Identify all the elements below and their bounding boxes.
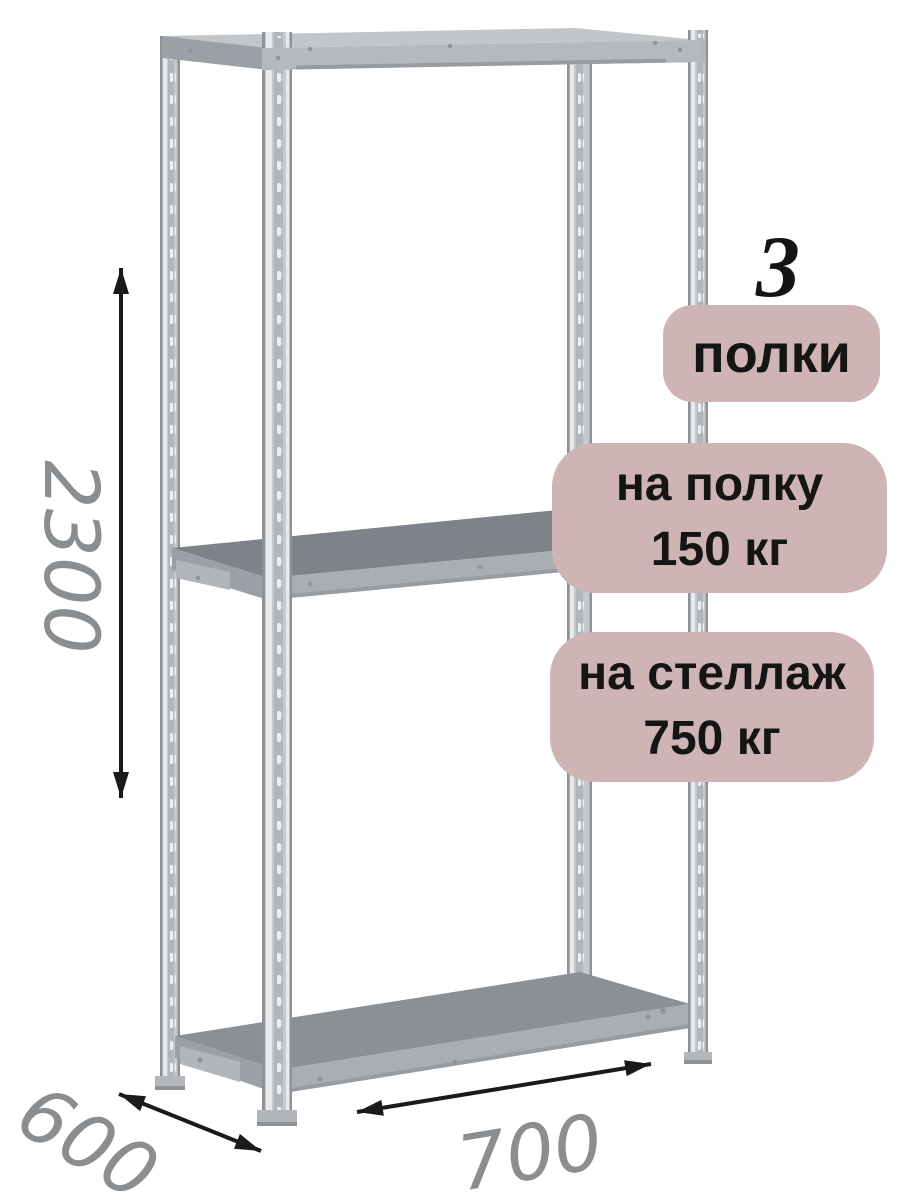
- post-front-left: [257, 32, 297, 1126]
- height-dimension-label: 2300: [27, 417, 117, 697]
- rack-illustration: [0, 0, 900, 1200]
- per-shelf-load-line1: на полку: [616, 453, 823, 518]
- per-shelf-load-line2: 150 кг: [651, 518, 788, 583]
- product-image: 3 полки на полку 150 кг на стеллаж 750 к…: [0, 0, 900, 1200]
- shelf-count-badge: полки: [663, 305, 880, 402]
- per-rack-load-line1: на стеллаж: [578, 642, 846, 707]
- shelf-bottom: [175, 972, 690, 1094]
- per-shelf-load-badge: на полку 150 кг: [552, 443, 887, 593]
- shelf-count-label: полки: [692, 323, 851, 385]
- per-rack-load-line2: 750 кг: [643, 707, 780, 772]
- shelf-top: [162, 28, 700, 70]
- per-rack-load-badge: на стеллаж 750 кг: [550, 632, 874, 782]
